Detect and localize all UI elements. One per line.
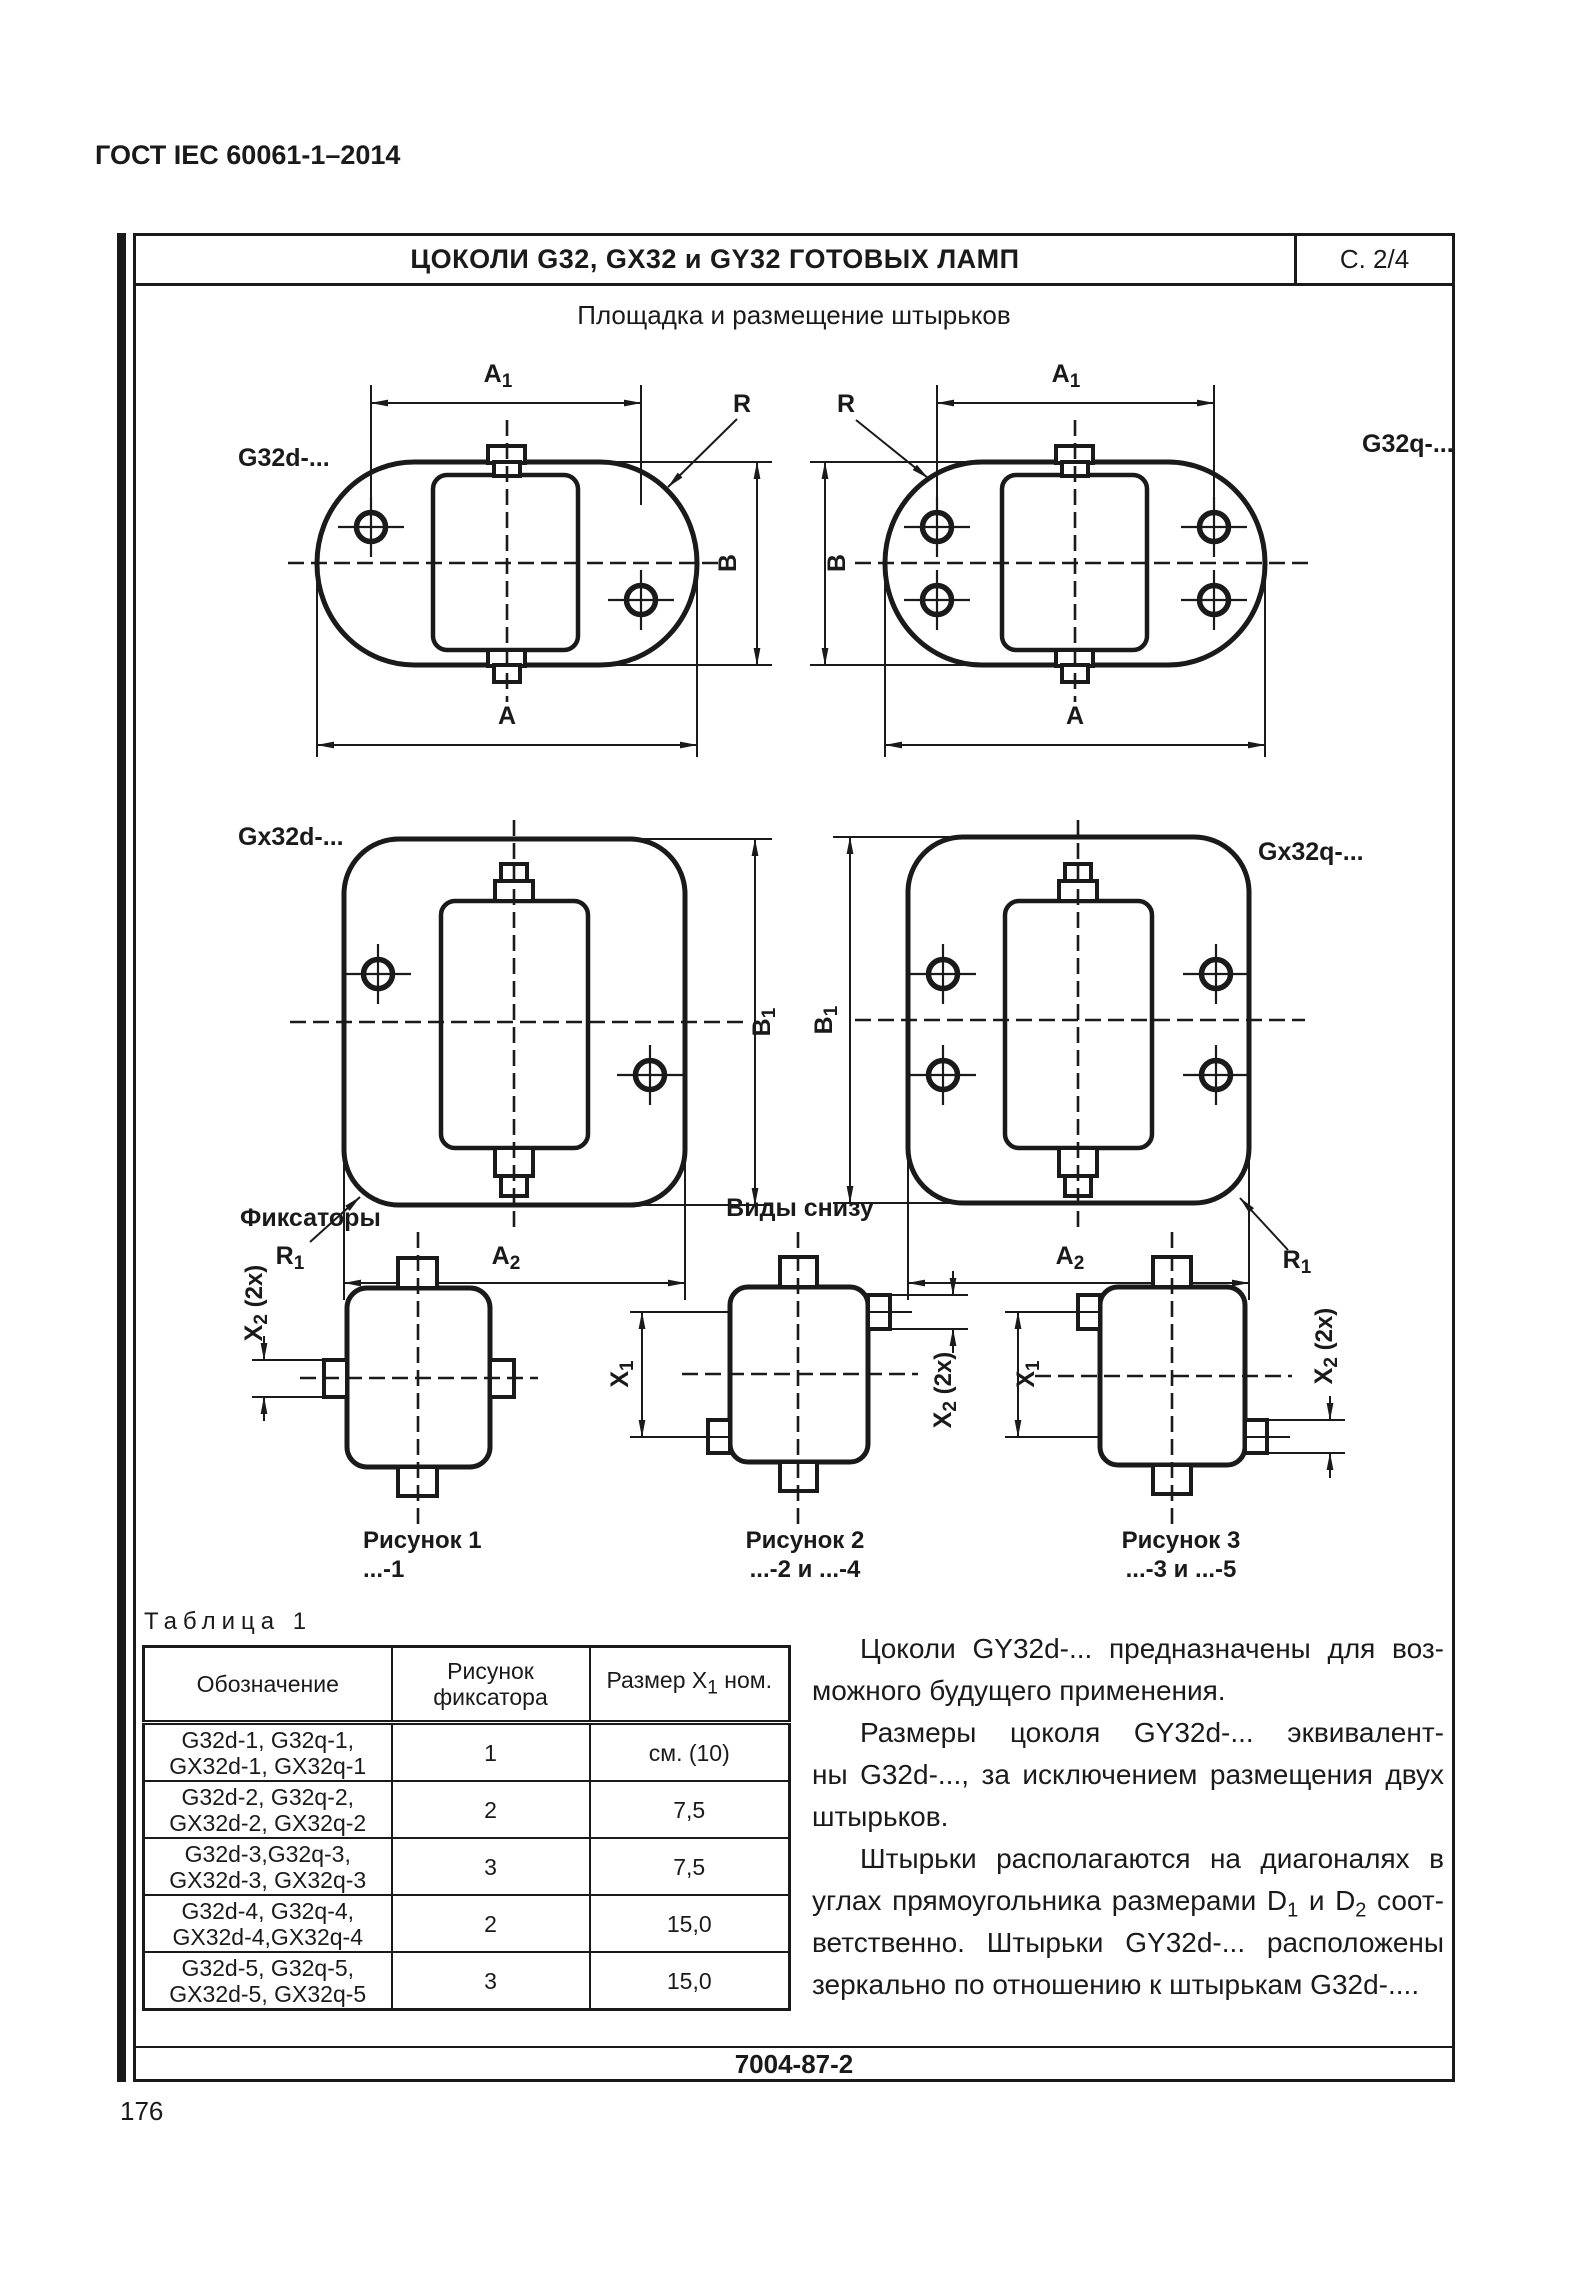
- col-header-size-x1: Размер X1 ном.: [590, 1647, 790, 1723]
- cell-designations: G32d-5, G32q-5, GX32d-5, GX32q-5: [144, 1952, 392, 2010]
- figure1-fixator: X2 (2x): [240, 1232, 538, 1528]
- text-line: ны G32d-..., за исключением размещения д…: [812, 1754, 1444, 1796]
- cell-designations: G32d-3,G32q-3, GX32d-3, GX32q-3: [144, 1838, 392, 1895]
- designation-table: Обозначение Рисунок фиксатора Размер X1 …: [142, 1645, 791, 2011]
- drawing-g32q: G32q-... A1 A B R: [810, 360, 1454, 757]
- figure1-caption: Рисунок 1 ...-1: [363, 1526, 482, 1584]
- figure2-caption: Рисунок 2 ...-2 и ...-4: [715, 1526, 895, 1584]
- cell-size: 7,5: [590, 1781, 790, 1838]
- section-heading-fixators: Фиксаторы: [240, 1204, 381, 1233]
- table-row: G32d-1, G32q-1, GX32d-1, GX32q-1 1 см. (…: [144, 1723, 790, 1782]
- text-line: Цоколи GY32d-... предназначены для воз-: [812, 1628, 1444, 1670]
- figure3-caption-variants: ...-3 и ...-5: [1091, 1555, 1271, 1584]
- dim-label-r: R: [837, 390, 855, 418]
- text-line: Размеры цоколя GY32d-... эквивалент-: [812, 1712, 1444, 1754]
- gost-standard-page: { "doc": { "standard": "ГОСТ IEC 60061-1…: [0, 0, 1575, 2283]
- label-g32q: G32q-...: [1362, 430, 1454, 458]
- col-header-fixator-figure: Рисунок фиксатора: [392, 1647, 590, 1723]
- dim-label-b1: B1: [748, 1007, 780, 1036]
- figure2-fixator: X1 X2 (2x): [606, 1232, 968, 1525]
- cell-size: см. (10): [590, 1723, 790, 1782]
- section-heading-bottom-views: Виды снизу: [690, 1194, 910, 1223]
- cell-designations: G32d-2, G32q-2, GX32d-2, GX32q-2: [144, 1781, 392, 1838]
- dim-label-b: B: [823, 554, 851, 572]
- drawing-g32d: G32d-... A1 A B R: [238, 360, 772, 757]
- dim-label-b: B: [714, 554, 742, 572]
- cell-designations: G32d-1, G32q-1, GX32d-1, GX32q-1: [144, 1723, 392, 1782]
- text-line: ветственно. Штырьки GY32d-... расположен…: [812, 1922, 1444, 1964]
- dim-label-a1: A1: [484, 360, 513, 392]
- dim-label-r: R: [733, 390, 751, 418]
- label-g32d: G32d-...: [238, 444, 330, 472]
- col-header-designation: Обозначение: [144, 1647, 392, 1723]
- footer-sheet-code: 7004-87-2: [136, 2046, 1452, 2081]
- text-line: зеркально по отношению к штырькам G32d-.…: [812, 1964, 1444, 2006]
- label-gx32q: Gx32q-...: [1258, 838, 1364, 866]
- table-row: G32d-5, G32q-5, GX32d-5, GX32q-5 3 15,0: [144, 1952, 790, 2010]
- cell-designations: G32d-4, G32q-4, GX32d-4,GX32q-4: [144, 1895, 392, 1952]
- cell-size: 7,5: [590, 1838, 790, 1895]
- cell-figure: 3: [392, 1838, 590, 1895]
- cell-figure: 3: [392, 1952, 590, 2010]
- table-row: G32d-2, G32q-2, GX32d-2, GX32q-2 2 7,5: [144, 1781, 790, 1838]
- dim-label-x2: X2 (2x): [929, 1352, 961, 1429]
- dim-label-x1: X1: [606, 1360, 638, 1388]
- table-header-row: Обозначение Рисунок фиксатора Размер X1 …: [144, 1647, 790, 1723]
- table-row: G32d-3,G32q-3, GX32d-3, GX32q-3 3 7,5: [144, 1838, 790, 1895]
- dim-label-b1: B1: [810, 1005, 842, 1034]
- figure3-caption: Рисунок 3 ...-3 и ...-5: [1091, 1526, 1271, 1584]
- dim-label-x2: X2 (2x): [240, 1265, 272, 1342]
- dim-label-a2: A2: [1056, 1242, 1085, 1274]
- cell-figure: 1: [392, 1723, 590, 1782]
- figure3-caption-title: Рисунок 3: [1091, 1526, 1271, 1555]
- figure2-caption-variants: ...-2 и ...-4: [715, 1555, 895, 1584]
- drawing-gx32q: Gx32q-... B1 A2 R1: [810, 820, 1364, 1300]
- text-line: штырьков.: [812, 1796, 1444, 1838]
- dim-label-r1: R1: [1283, 1246, 1312, 1278]
- dim-label-r1: R1: [276, 1242, 305, 1274]
- page-number: 176: [120, 2096, 163, 2127]
- dim-label-x2: X2 (2x): [1310, 1308, 1342, 1385]
- figure1-caption-variants: ...-1: [363, 1555, 482, 1584]
- dim-label-a1: A1: [1052, 360, 1081, 392]
- figure2-caption-title: Рисунок 2: [715, 1526, 895, 1555]
- label-gx32d: Gx32d-...: [238, 823, 344, 851]
- table-row: G32d-4, G32q-4, GX32d-4,GX32q-4 2 15,0: [144, 1895, 790, 1952]
- dim-label-a: A: [1066, 702, 1084, 730]
- text-line: Штырьки располагаются на диагоналях в: [812, 1838, 1444, 1880]
- cell-size: 15,0: [590, 1952, 790, 2010]
- dim-label-a2: A2: [492, 1242, 521, 1274]
- dim-label-a: A: [498, 702, 516, 730]
- text-line: углах прямоугольника размерами D1 и D2 с…: [812, 1880, 1444, 1922]
- figure3-fixator: X1 X2 (2x): [1005, 1232, 1345, 1528]
- cell-size: 15,0: [590, 1895, 790, 1952]
- table-title: Таблица 1: [144, 1608, 312, 1636]
- text-line: можного будущего применения.: [812, 1670, 1444, 1712]
- dim-label-x1: X1: [1012, 1360, 1044, 1388]
- description-text: Цоколи GY32d-... предназначены для воз- …: [812, 1628, 1444, 2006]
- cell-figure: 2: [392, 1895, 590, 1952]
- cell-figure: 2: [392, 1781, 590, 1838]
- figure1-caption-title: Рисунок 1: [363, 1526, 482, 1555]
